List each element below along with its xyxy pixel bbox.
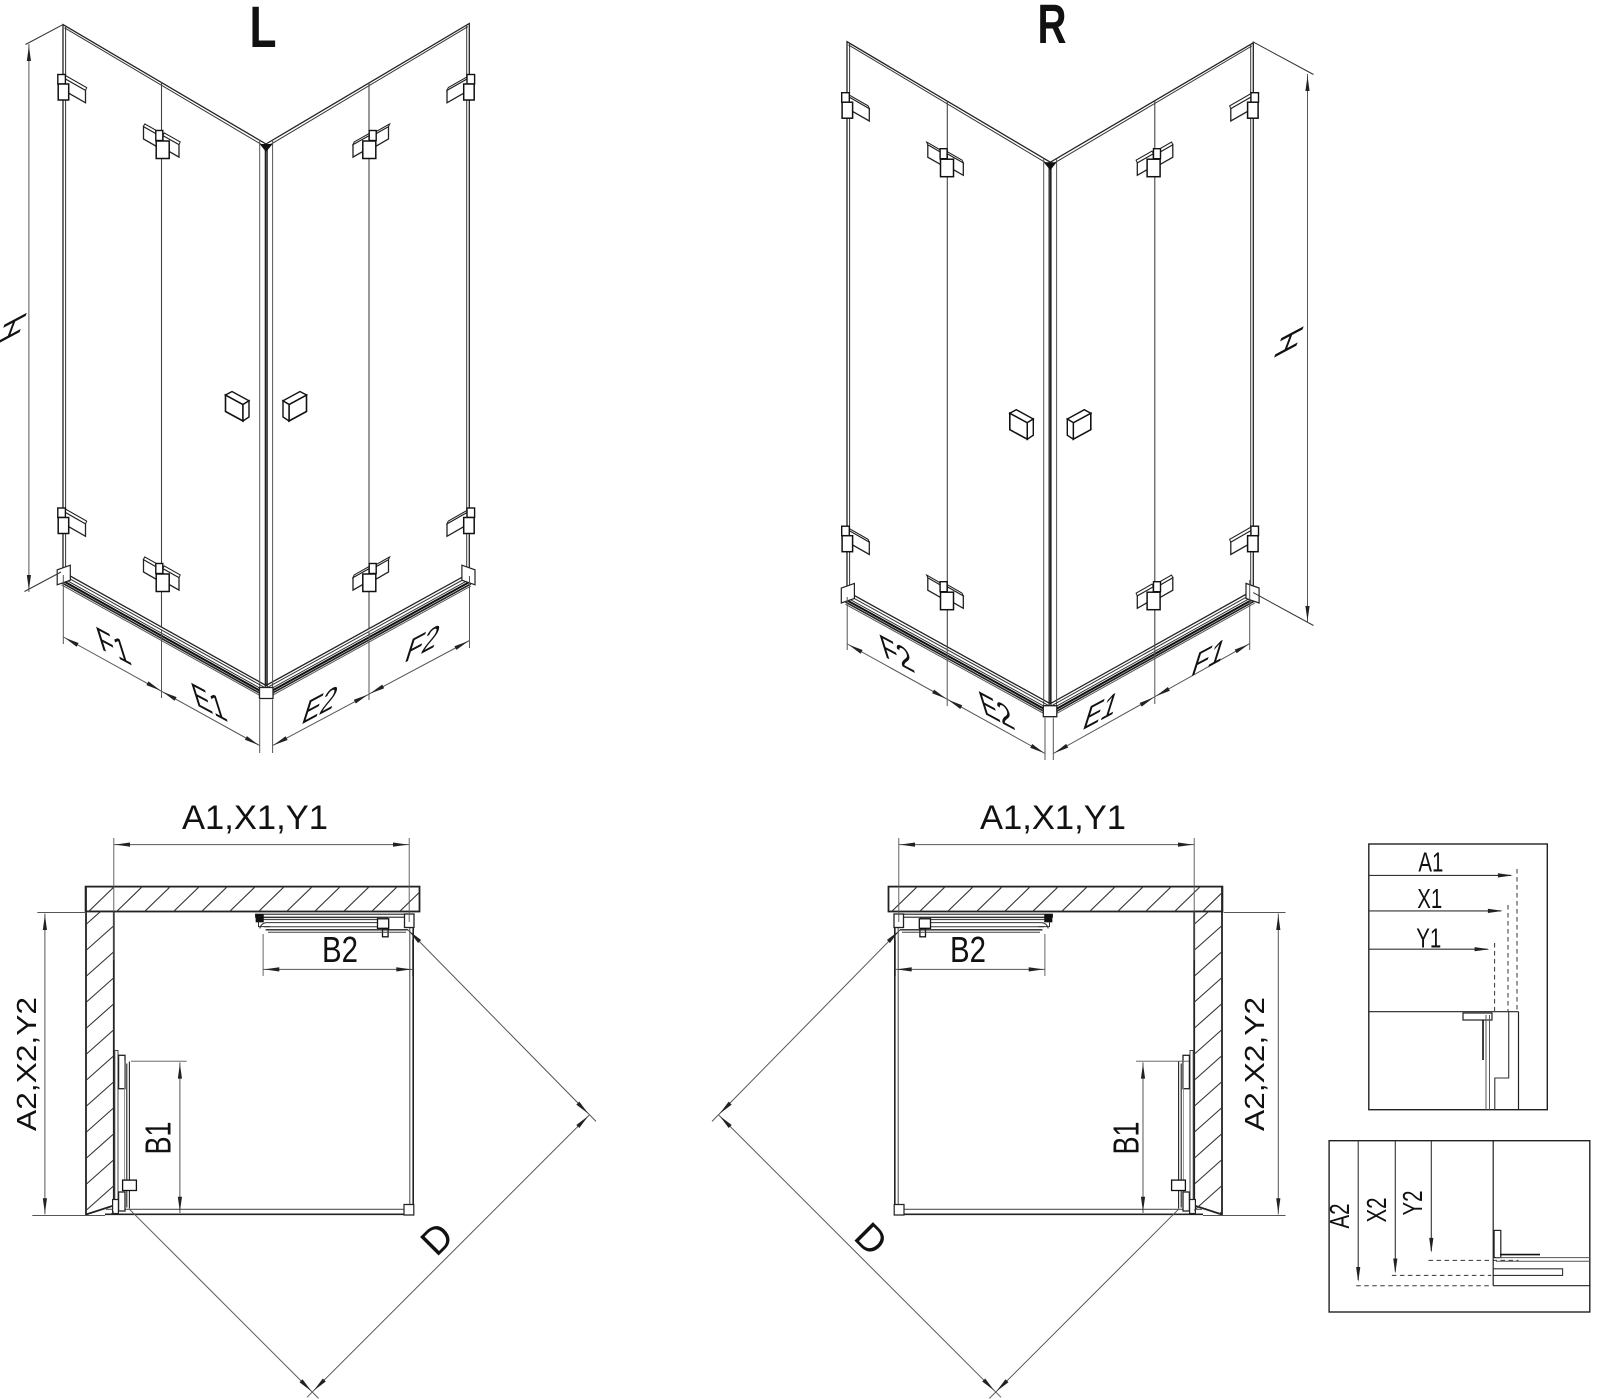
svg-text:R: R [1038,0,1067,55]
svg-text:A2,X2,Y2: A2,X2,Y2 [11,997,42,1131]
svg-text:A2: A2 [1324,1204,1355,1229]
svg-text:B2: B2 [950,929,986,970]
svg-text:B1: B1 [1106,1122,1147,1155]
svg-text:L: L [250,0,277,60]
svg-text:A1,X1,Y1: A1,X1,Y1 [182,799,328,837]
svg-text:Y2: Y2 [1397,1191,1428,1216]
svg-text:A1: A1 [1418,847,1443,878]
svg-text:Y1: Y1 [1416,923,1441,954]
svg-text:X2: X2 [1361,1198,1392,1223]
svg-text:B2: B2 [322,929,358,970]
svg-text:A2,X2,Y2: A2,X2,Y2 [1239,997,1270,1131]
svg-text:X1: X1 [1417,883,1442,914]
svg-text:A1,X1,Y1: A1,X1,Y1 [980,799,1126,837]
svg-text:B1: B1 [137,1122,178,1155]
